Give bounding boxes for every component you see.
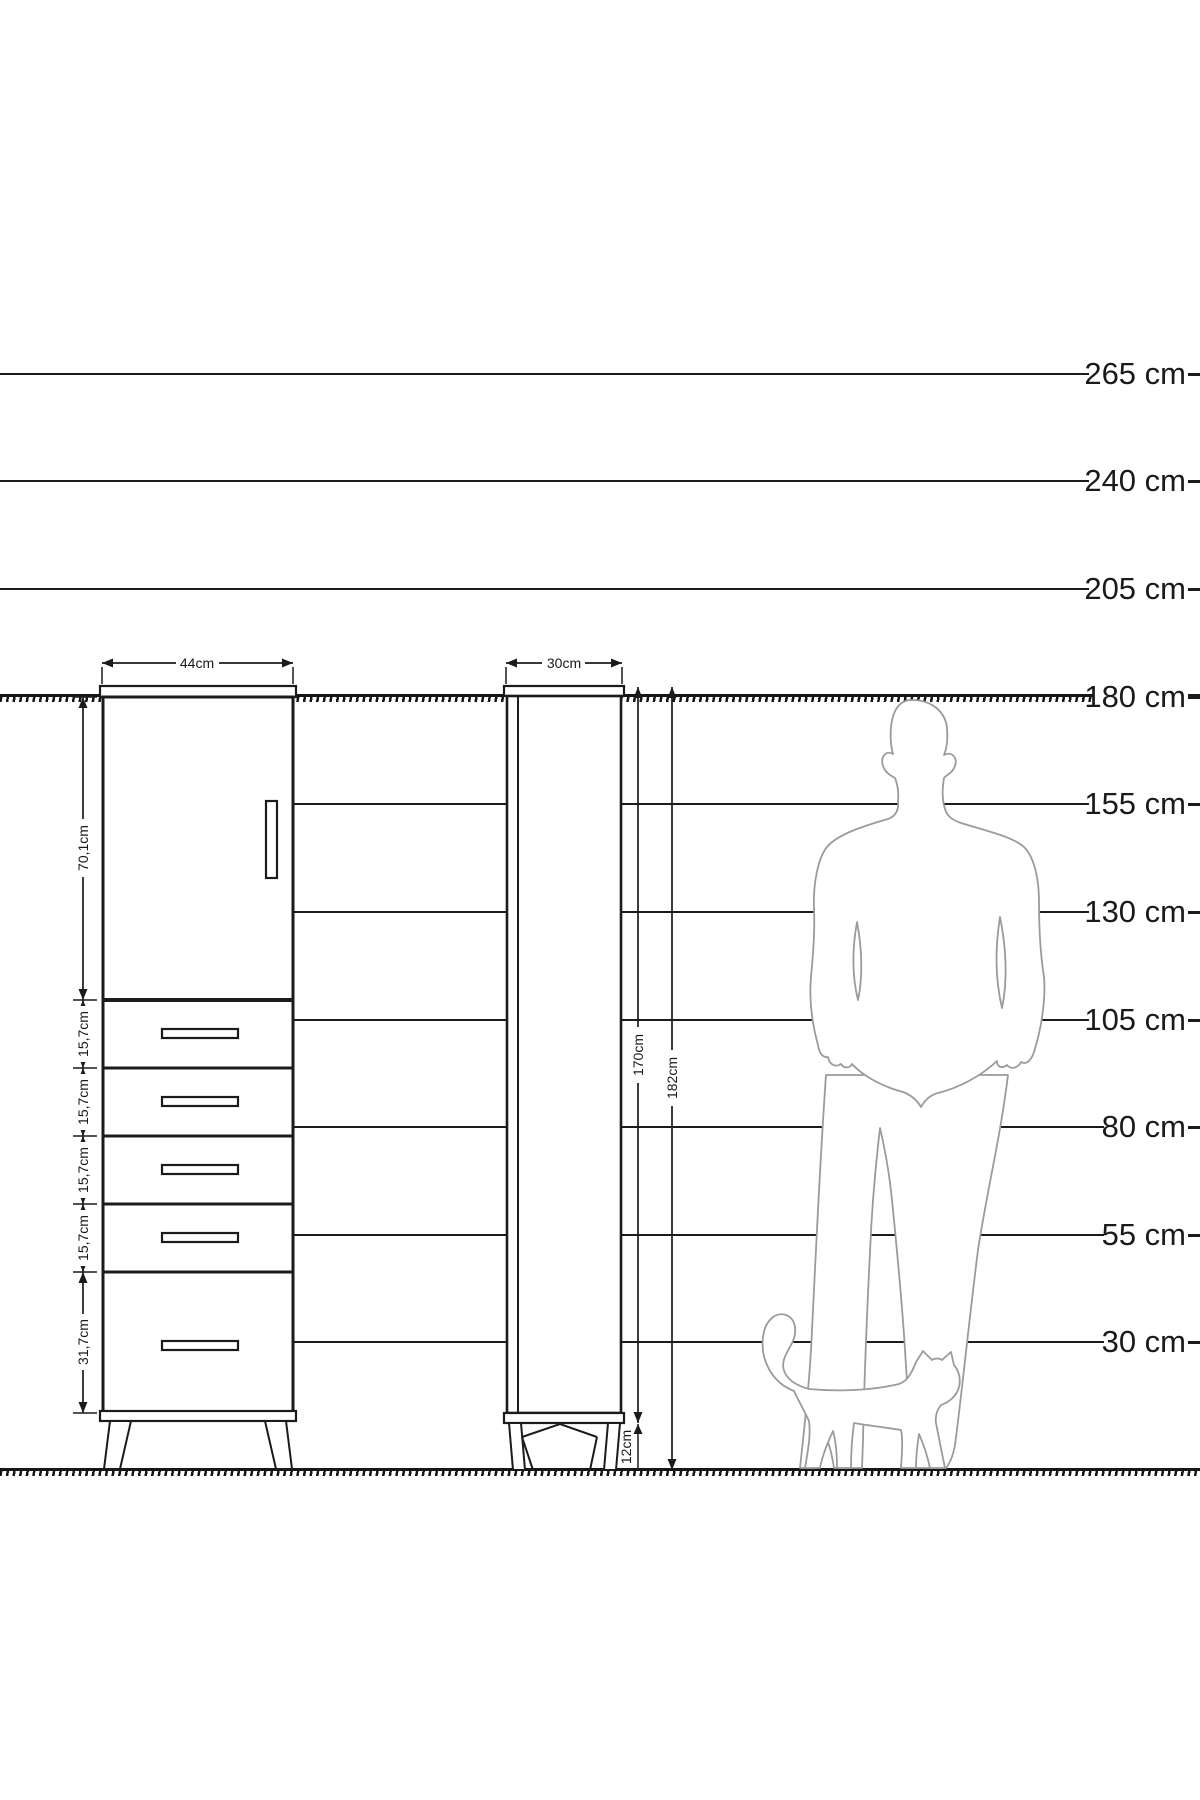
- diagram-drawing: 44cm 30cm 70,1cm 15,7cm: [0, 0, 1200, 1800]
- side-bottom-bar: [504, 1413, 624, 1423]
- door-height-label: 70,1cm: [75, 825, 91, 871]
- scale-tick-105: [1188, 1019, 1200, 1022]
- drawer-handle-3: [162, 1165, 238, 1174]
- scale-tick-240: [1188, 480, 1200, 483]
- front-body: [103, 697, 293, 1412]
- dim-arrow-12: [634, 1424, 643, 1434]
- diagram-canvas: 44cm 30cm 70,1cm 15,7cm: [0, 0, 1200, 1800]
- scale-label-105: 105 cm: [1084, 1002, 1186, 1038]
- drawer-height-label-4: 15,7cm: [75, 1215, 91, 1261]
- front-left-leg: [104, 1421, 131, 1469]
- side-body: [507, 696, 621, 1413]
- side-body-height-label: 170cm: [630, 1034, 646, 1076]
- scale-tick-205: [1188, 588, 1200, 591]
- side-total-height-label: 182cm: [664, 1057, 680, 1099]
- scale-label-130: 130 cm: [1084, 894, 1186, 930]
- drawer-handle-4: [162, 1233, 238, 1242]
- bottom-drawer-height-label: 31,7cm: [75, 1319, 91, 1365]
- front-door-handle: [266, 801, 277, 878]
- scale-tick-180: [1188, 694, 1200, 699]
- scale-label-180: 180 cm: [1084, 679, 1186, 715]
- side-top-panel: [504, 686, 624, 696]
- front-view-cabinet: [100, 686, 296, 1469]
- front-top-panel: [100, 686, 296, 697]
- side-leg-brace-right: [590, 1437, 597, 1470]
- drawer-handle-2: [162, 1097, 238, 1106]
- front-right-leg: [265, 1421, 292, 1469]
- scale-tick-265: [1188, 373, 1200, 376]
- scale-label-55: 55 cm: [1102, 1217, 1186, 1253]
- side-width-label: 30cm: [547, 655, 581, 671]
- drawer-handle-5: [162, 1341, 238, 1350]
- side-leg-height-label: 12cm: [618, 1430, 634, 1464]
- scale-tick-130: [1188, 911, 1200, 914]
- scale-tick-80: [1188, 1126, 1200, 1129]
- scale-label-240: 240 cm: [1084, 463, 1186, 499]
- side-leg-brace: [522, 1424, 597, 1437]
- side-left-leg: [509, 1423, 525, 1470]
- scale-tick-155: [1188, 803, 1200, 806]
- man-body: [810, 700, 1044, 1107]
- drawer-height-label-1: 15,7cm: [75, 1011, 91, 1057]
- front-width-label: 44cm: [180, 655, 214, 671]
- scale-label-30: 30 cm: [1102, 1324, 1186, 1360]
- scale-tick-30: [1188, 1341, 1200, 1344]
- scale-label-205: 205 cm: [1084, 571, 1186, 607]
- drawer-handle-1: [162, 1029, 238, 1038]
- drawer-height-label-3: 15,7cm: [75, 1147, 91, 1193]
- front-bottom-bar: [100, 1411, 296, 1421]
- drawer-height-label-2: 15,7cm: [75, 1079, 91, 1125]
- scale-label-155: 155 cm: [1084, 786, 1186, 822]
- scale-label-265: 265 cm: [1084, 356, 1186, 392]
- scale-label-80: 80 cm: [1102, 1109, 1186, 1145]
- scale-tick-55: [1188, 1234, 1200, 1237]
- side-view-cabinet: [504, 686, 624, 1470]
